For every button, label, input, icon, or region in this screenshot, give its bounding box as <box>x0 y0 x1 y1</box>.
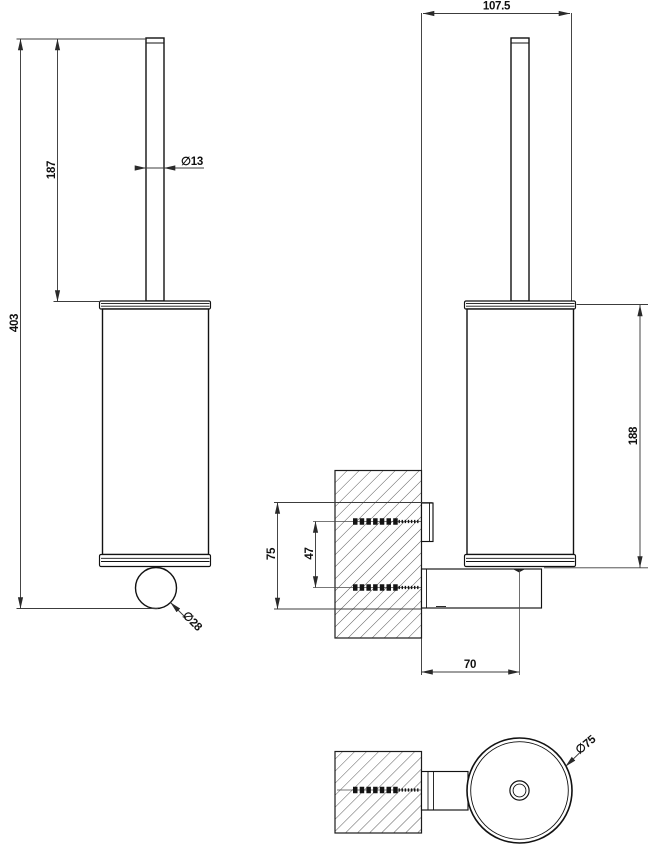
front-handle-rod <box>146 38 164 301</box>
front-view <box>100 38 211 609</box>
dim-label-overall-height: 403 <box>9 314 21 332</box>
toilet-brush-holder-drawing: 403 187 ∅13 ∅28 <box>0 0 658 853</box>
dim-label-screw-spacing: 47 <box>304 547 316 559</box>
technical-drawing-canvas: 403 187 ∅13 ∅28 <box>0 0 658 853</box>
front-holder-body <box>103 309 209 555</box>
dim-label-overall-depth: 107.5 <box>483 1 511 13</box>
support-arm-top-view <box>422 772 469 811</box>
dim-label-handle-length: 187 <box>46 161 58 179</box>
side-view <box>313 13 576 675</box>
dim-label-handle-diameter: ∅13 <box>181 156 203 168</box>
front-lid <box>100 301 211 309</box>
support-arm <box>422 569 542 608</box>
side-holder-body <box>467 309 574 555</box>
bottom-dimensions: ∅75 <box>566 733 599 767</box>
dim-label-holder-diameter: ∅75 <box>574 733 599 757</box>
dim-label-mounting-height: 75 <box>266 547 278 560</box>
holder-outline-circle <box>467 738 572 843</box>
mount-plate <box>422 503 434 542</box>
wall-section-hatch-bottom <box>335 752 422 834</box>
front-bottom-ring <box>100 555 211 567</box>
side-lid <box>465 301 576 309</box>
dim-label-wall-to-axis: 70 <box>464 659 476 671</box>
dim-label-knob-diameter: ∅28 <box>180 610 205 635</box>
bottom-view <box>335 738 572 843</box>
side-bottom-ring <box>465 555 576 567</box>
dim-label-holder-height: 188 <box>628 426 640 445</box>
wall-section-hatch <box>335 471 422 639</box>
front-bottom-knob <box>136 568 177 609</box>
side-handle-rod <box>511 38 529 301</box>
